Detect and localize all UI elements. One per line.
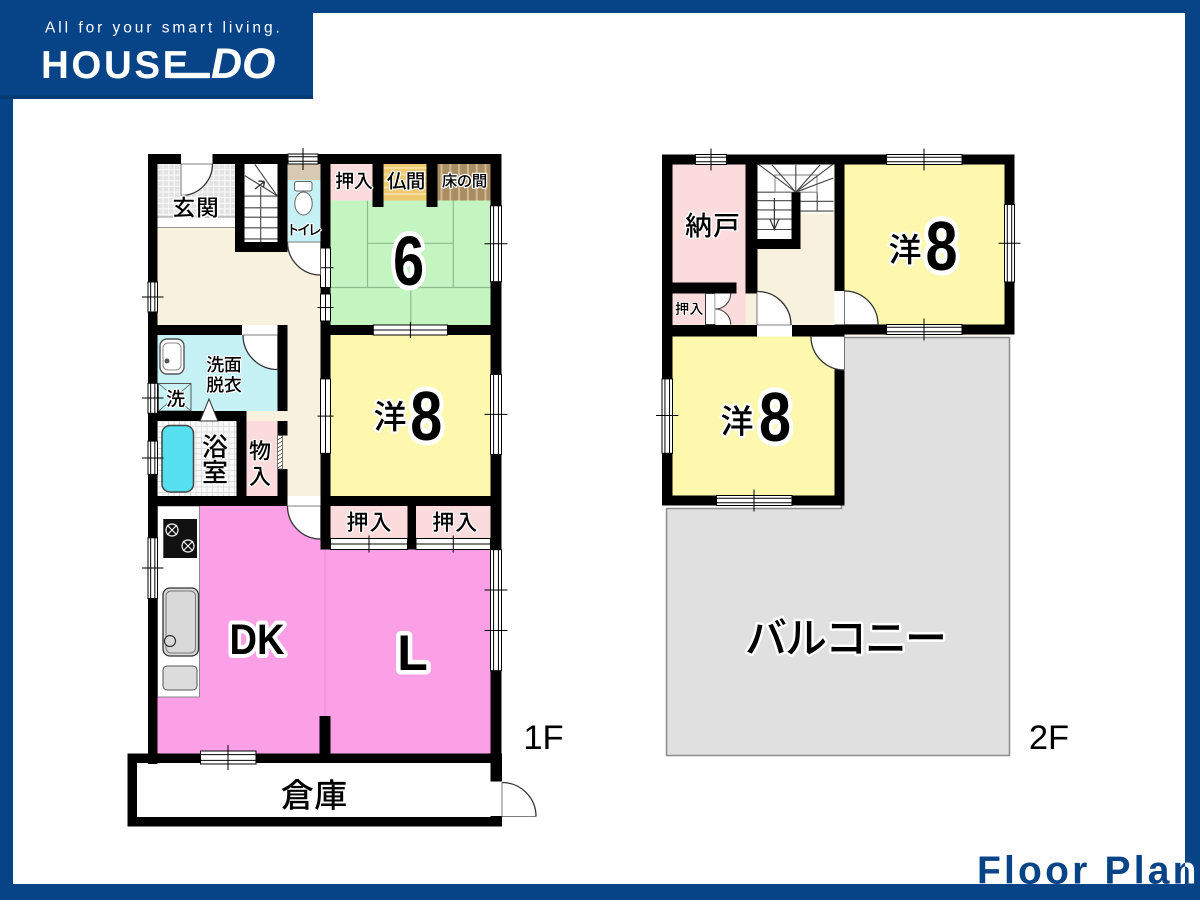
- svg-text:HOUSE: HOUSE: [41, 44, 191, 87]
- svg-text:All for your smart living.: All for your smart living.: [45, 20, 283, 37]
- svg-text:DO: DO: [211, 40, 276, 88]
- svg-text:Floor Plan: Floor Plan: [977, 850, 1200, 893]
- svg-text:L: L: [397, 625, 428, 681]
- svg-text:1F: 1F: [523, 719, 563, 757]
- svg-text:6: 6: [393, 222, 424, 300]
- svg-text:2F: 2F: [1029, 719, 1069, 757]
- svg-text:8: 8: [759, 378, 791, 456]
- svg-text:8: 8: [410, 377, 442, 455]
- svg-text:DK: DK: [230, 616, 285, 664]
- svg-text:8: 8: [926, 207, 958, 285]
